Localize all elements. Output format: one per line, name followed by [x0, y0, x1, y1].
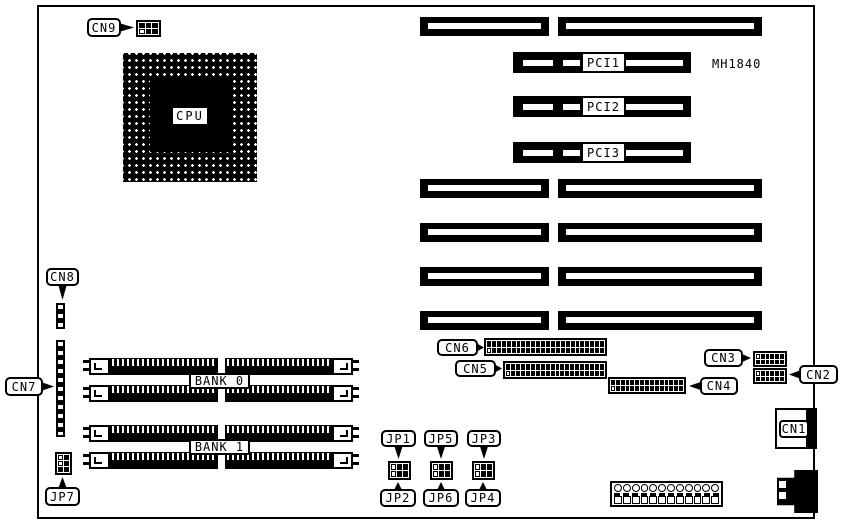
- cn2-connector: [753, 368, 787, 384]
- bank0-label: BANK 0: [189, 373, 250, 389]
- cpu-die: CPU: [150, 80, 230, 152]
- cn4-label-text: CN4: [707, 379, 732, 393]
- cn5-connector: [503, 361, 607, 379]
- simm-pins-icon: [82, 385, 89, 402]
- simm-pins-icon: [82, 452, 89, 469]
- cn8-connector: [56, 303, 65, 329]
- simm-pins-icon: [353, 452, 360, 469]
- pci-slot-1: PCI1: [513, 52, 691, 73]
- pci-slot-3: PCI3: [513, 142, 691, 163]
- jp3-label-text: JP3: [472, 432, 497, 446]
- jp5-label: JP5: [424, 430, 458, 447]
- isa-slot-4-left: [420, 267, 549, 286]
- simm-latch-left-icon: [89, 452, 110, 469]
- cn1-connector: CN1: [775, 408, 817, 449]
- isa-slot-3-right: [558, 223, 762, 242]
- pci2-key-icon: [625, 104, 683, 110]
- pci1-key-icon: [563, 60, 580, 66]
- pci3-key-icon: [523, 150, 553, 156]
- terminal-pins-top: [614, 484, 719, 492]
- cn1-label-text: CN1: [782, 422, 807, 436]
- jp3-label: JP3: [467, 430, 501, 447]
- isa-slot-1-left: [420, 17, 549, 36]
- pci3-label: PCI3: [581, 142, 626, 163]
- simm-pins-icon: [353, 358, 360, 375]
- cn9-label: CN9: [87, 18, 121, 37]
- pci2-key-icon: [563, 104, 580, 110]
- pci-slot-2: PCI2: [513, 96, 691, 117]
- jp3-jp4-jumper-block: [472, 461, 495, 480]
- cn7-label: CN7: [5, 377, 43, 396]
- simm-pins-icon: [82, 358, 89, 375]
- jp4-label-text: JP4: [471, 491, 496, 505]
- simm-latch-right-icon: [332, 452, 353, 469]
- simm-latch-left-icon: [89, 358, 110, 375]
- cn8-label: CN8: [46, 268, 79, 286]
- pci3-key-icon: [563, 150, 580, 156]
- simm-pins-icon: [82, 425, 89, 442]
- cpu-socket: CPU: [123, 53, 257, 182]
- cn4-label: CN4: [700, 377, 738, 395]
- pci1-label: PCI1: [581, 52, 626, 73]
- cn8-label-text: CN8: [50, 270, 75, 284]
- pci1-key-icon: [625, 60, 683, 66]
- jp2-label: JP2: [380, 489, 416, 507]
- cn3-connector: [753, 351, 787, 367]
- jp2-label-text: JP2: [386, 491, 411, 505]
- bank0-label-text: BANK 0: [195, 374, 244, 388]
- cn4-connector: [608, 377, 686, 394]
- terminal-pins-bottom: [614, 496, 719, 504]
- isa-slot-5-right: [558, 311, 762, 330]
- cn6-label: CN6: [437, 339, 478, 356]
- jp1-label: JP1: [381, 430, 416, 447]
- cn1-label: CN1: [779, 420, 809, 438]
- isa-slot-1-right: [558, 17, 762, 36]
- pci1-key-icon: [523, 60, 553, 66]
- simm-latch-left-icon: [89, 385, 110, 402]
- isa-slot-2-left: [420, 179, 549, 198]
- cn3-label-text: CN3: [711, 351, 736, 365]
- jp1-jp2-jumper-block: [388, 461, 411, 480]
- cn3-label: CN3: [704, 349, 743, 367]
- simm-latch-right-icon: [332, 425, 353, 442]
- simm-latch-right-icon: [332, 385, 353, 402]
- pci3-key-icon: [625, 150, 683, 156]
- simm-pins-icon: [353, 385, 360, 402]
- jp7-label-text: JP7: [50, 490, 75, 504]
- power-terminal-connector: [610, 481, 723, 507]
- simm-latch-left-icon: [89, 425, 110, 442]
- cn2-label: CN2: [799, 365, 838, 384]
- jp6-label-text: JP6: [429, 491, 454, 505]
- cn5-label-text: CN5: [463, 362, 488, 376]
- motherboard-layout-diagram: MH1840 CPU CN9 PCI1 PCI2 PCI3: [0, 0, 842, 527]
- cn5-label: CN5: [455, 360, 496, 377]
- cn2-label-text: CN2: [806, 368, 831, 382]
- cn7-connector: [56, 340, 65, 437]
- jp7-label: JP7: [45, 487, 80, 506]
- bank1-label: BANK 1: [189, 439, 250, 455]
- model-number: MH1840: [712, 57, 761, 71]
- isa-slot-2-right: [558, 179, 762, 198]
- cn6-label-text: CN6: [445, 341, 470, 355]
- pci2-label: PCI2: [581, 96, 626, 117]
- cpu-label: CPU: [172, 107, 208, 125]
- cn9-label-text: CN9: [92, 21, 117, 35]
- cn7-label-text: CN7: [12, 380, 37, 394]
- jp5-label-text: JP5: [429, 432, 454, 446]
- jp5-jp6-jumper-block: [430, 461, 453, 480]
- jp7-jumper-block: [55, 452, 72, 475]
- isa-slot-3-left: [420, 223, 549, 242]
- cn9-connector: [136, 20, 161, 37]
- jp6-label: JP6: [423, 489, 459, 507]
- jp1-label-text: JP1: [386, 432, 411, 446]
- isa-slot-4-right: [558, 267, 762, 286]
- pci2-key-icon: [523, 104, 553, 110]
- isa-slot-5-left: [420, 311, 549, 330]
- cn6-connector: [484, 338, 607, 356]
- simm-pins-icon: [353, 425, 360, 442]
- simm-latch-right-icon: [332, 358, 353, 375]
- bank1-label-text: BANK 1: [195, 440, 244, 454]
- jp4-label: JP4: [465, 489, 501, 507]
